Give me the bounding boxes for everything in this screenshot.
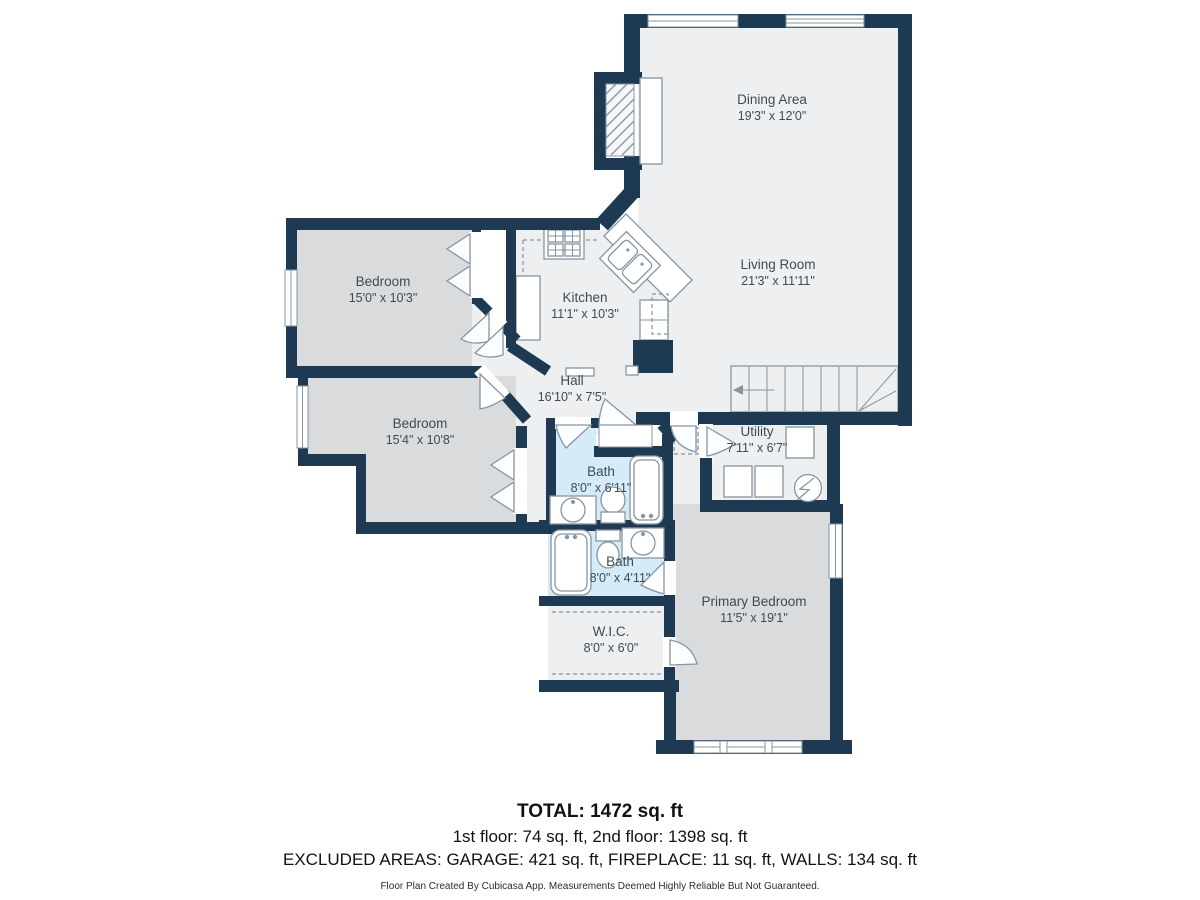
floor-areas: 1st floor: 74 sq. ft, 2nd floor: 1398 sq…	[0, 827, 1200, 847]
window	[786, 15, 864, 27]
floor-plan-page: Dining Area 19'3" x 12'0" Living Room 21…	[0, 0, 1200, 900]
room-dims-hall: 16'10" x 7'5"	[538, 390, 607, 404]
room-label-bath2: Bath	[606, 554, 634, 569]
water-heater-icon	[795, 475, 822, 502]
bathtub-icon	[630, 456, 663, 524]
dryer-icon	[755, 466, 783, 497]
window	[297, 386, 308, 448]
room-dims-kitchen: 11'1" x 10'3"	[551, 307, 619, 321]
room-label-primary: Primary Bedroom	[701, 594, 806, 609]
room-dims-living: 21'3" x 11'11"	[741, 274, 815, 288]
room-label-wic: W.I.C.	[593, 624, 630, 639]
appliance	[786, 427, 814, 458]
room-label-utility: Utility	[741, 424, 774, 439]
room-dims-bath2: 8'0" x 4'11"	[590, 571, 651, 585]
window	[648, 15, 738, 27]
stove-icon	[544, 227, 584, 259]
room-label-bedroom2: Bedroom	[393, 416, 448, 431]
room-dims-primary: 11'5" x 19'1"	[720, 611, 788, 625]
room-label-bedroom1: Bedroom	[356, 274, 411, 289]
excluded-areas: EXCLUDED AREAS: GARAGE: 421 sq. ft, FIRE…	[0, 850, 1200, 870]
room-dims-bath1: 8'0" x 6'11"	[571, 481, 632, 495]
floor-plan: Dining Area 19'3" x 12'0" Living Room 21…	[0, 0, 1200, 900]
room-dims-wic: 8'0" x 6'0"	[584, 641, 639, 655]
disclaimer-text: Floor Plan Created By Cubicasa App. Meas…	[0, 881, 1200, 892]
room-dims-utility: 7'11" x 6'7"	[727, 441, 788, 455]
linen-niche	[599, 425, 652, 447]
room-dims-bedroom1: 15'0" x 10'3"	[349, 291, 418, 305]
summary-footer: TOTAL: 1472 sq. ft 1st floor: 74 sq. ft,…	[0, 801, 1200, 892]
room-label-dining: Dining Area	[737, 92, 807, 107]
room-label-hall: Hall	[560, 373, 583, 388]
hall-nook-floor	[527, 420, 546, 524]
window	[285, 270, 297, 326]
room-label-living: Living Room	[740, 257, 815, 272]
window	[829, 524, 842, 578]
toilet-icon	[596, 530, 620, 541]
window	[694, 741, 802, 753]
room-label-kitchen: Kitchen	[562, 290, 607, 305]
washer-icon	[724, 466, 752, 497]
room-dims-dining: 19'3" x 12'0"	[738, 109, 807, 123]
living-dining-floor	[638, 28, 898, 412]
hearth	[640, 78, 662, 164]
room-dims-bedroom2: 15'4" x 10'8"	[386, 433, 455, 447]
fireplace	[606, 78, 662, 164]
total-area: TOTAL: 1472 sq. ft	[0, 801, 1200, 823]
kitchen-counter	[516, 276, 540, 340]
room-label-bath1: Bath	[587, 464, 615, 479]
bathtub-icon	[551, 530, 591, 595]
